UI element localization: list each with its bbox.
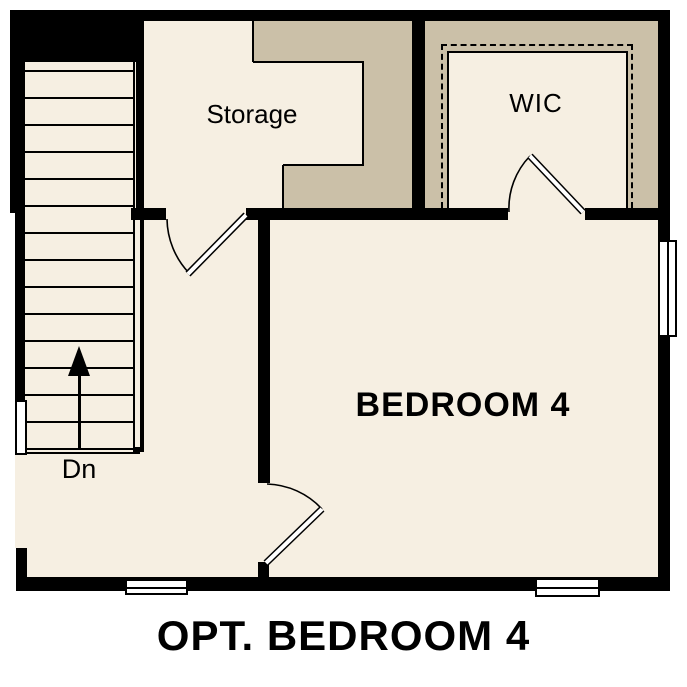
storage-door [167, 215, 246, 274]
bedroom-door [266, 484, 322, 563]
wic-label: WIC [436, 89, 636, 118]
plan-title: OPT. BEDROOM 4 [0, 612, 687, 660]
floor-plan: Storage WIC BEDROOM 4 Dn [0, 0, 687, 687]
stairs-direction-label: Dn [29, 455, 129, 485]
bedroom-label: BEDROOM 4 [263, 386, 663, 425]
storage-label: Storage [152, 100, 352, 129]
wic-door [509, 156, 583, 212]
